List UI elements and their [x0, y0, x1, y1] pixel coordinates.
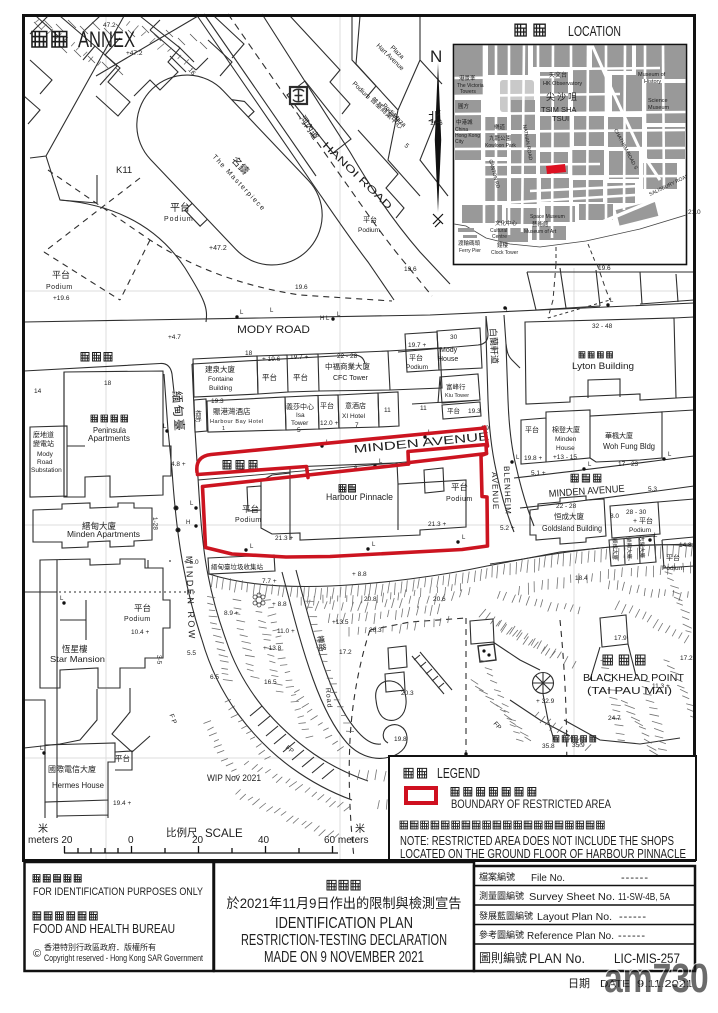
- svg-text:------: ------: [621, 872, 649, 884]
- svg-text:於2021年11月9日作出的限制與檢測宣告: 於2021年11月9日作出的限制與檢測宣告: [227, 895, 462, 911]
- svg-text:1-28: 1-28: [151, 517, 158, 531]
- svg-text:NOTE: RESTRICTED AREA DOES NOT: NOTE: RESTRICTED AREA DOES NOT INCLUDE T…: [400, 834, 674, 848]
- svg-text:19.7 +: 19.7 +: [290, 354, 308, 361]
- svg-text:0: 0: [128, 835, 134, 846]
- svg-text:24.7: 24.7: [608, 715, 621, 722]
- svg-text:參考圖編號: 參考圖編號: [479, 929, 524, 940]
- svg-text:10.4 +: 10.4 +: [131, 629, 149, 636]
- svg-text:H: H: [186, 520, 190, 526]
- svg-text:+ 8.8: + 8.8: [352, 571, 367, 578]
- svg-text:Podium: Podium: [235, 517, 262, 524]
- svg-text:FOOD AND HEALTH BUREAU: FOOD AND HEALTH BUREAU: [33, 922, 175, 936]
- svg-text:港景峯: 港景峯: [459, 74, 476, 82]
- svg-text:鐘樓: 鐘樓: [497, 241, 509, 249]
- svg-text:19.6: 19.6: [295, 284, 308, 291]
- svg-text:平台: 平台: [293, 372, 308, 382]
- svg-text:棉登大廈: 棉登大廈: [552, 425, 580, 434]
- svg-text:相助: 相助: [194, 410, 202, 422]
- svg-text:圓方: 圓方: [458, 102, 470, 110]
- svg-text:TSIM SHA: TSIM SHA: [541, 105, 576, 114]
- svg-text:恆星樓: 恆星樓: [62, 644, 88, 654]
- svg-text:19.6: 19.6: [598, 265, 611, 272]
- svg-text:圖則編號: 圖則編號: [479, 950, 527, 965]
- svg-text:賑港灣酒店: 賑港灣酒店: [213, 406, 251, 416]
- svg-text:測量圖編號: 測量圖編號: [479, 890, 524, 901]
- svg-text:華楓大廈: 華楓大廈: [605, 431, 633, 440]
- svg-text:19.7 +: 19.7 +: [408, 342, 426, 349]
- svg-text:義莎中心: 義莎中心: [286, 402, 314, 411]
- svg-text:比例尺: 比例尺: [166, 826, 198, 839]
- svg-text:麼地道: 麼地道: [33, 430, 54, 439]
- svg-text:平台: 平台: [666, 553, 680, 562]
- svg-text:17 - 23: 17 - 23: [618, 461, 639, 468]
- svg-text:8.0: 8.0: [610, 513, 619, 520]
- svg-text:16.5: 16.5: [264, 679, 277, 686]
- svg-text:平台: 平台: [52, 269, 70, 280]
- svg-text:5.2 +: 5.2 +: [500, 525, 515, 532]
- svg-text:14: 14: [34, 388, 42, 395]
- svg-text:11: 11: [420, 405, 427, 412]
- svg-text:米: 米: [355, 822, 365, 835]
- svg-text:Apartments: Apartments: [88, 433, 130, 443]
- svg-text:意酒店: 意酒店: [345, 401, 366, 410]
- svg-text:4.8 +: 4.8 +: [171, 461, 186, 468]
- svg-text:Survey Sheet No.: Survey Sheet No.: [529, 891, 615, 903]
- svg-text:平台: 平台: [170, 201, 190, 214]
- svg-text:Kowloon Park: Kowloon Park: [485, 143, 516, 149]
- svg-text:Science: Science: [648, 98, 668, 104]
- svg-text:Centre: Centre: [492, 234, 507, 240]
- svg-text:平台: 平台: [409, 353, 423, 362]
- svg-text:Layout Plan No.: Layout Plan No.: [537, 911, 612, 923]
- svg-text:中港城: 中港城: [456, 118, 473, 126]
- svg-text:建泉大廈: 建泉大廈: [205, 364, 235, 374]
- svg-text:©: ©: [33, 948, 41, 960]
- svg-text:XI Hotel: XI Hotel: [342, 413, 366, 420]
- svg-text:Museum of: Museum of: [638, 72, 666, 78]
- svg-text:日期: 日期: [568, 977, 590, 990]
- svg-text:ANNEX: ANNEX: [78, 27, 135, 52]
- svg-text:H L: H L: [320, 316, 330, 322]
- svg-text:BLENHEIM: BLENHEIM: [502, 466, 513, 515]
- svg-text:3-5: 3-5: [155, 655, 162, 665]
- svg-text:富峰行: 富峰行: [446, 382, 466, 391]
- svg-text:Ferry Pier: Ferry Pier: [459, 248, 481, 254]
- svg-text:平台: 平台: [451, 482, 468, 492]
- svg-text:14.8: 14.8: [679, 542, 692, 549]
- svg-text:City: City: [455, 139, 464, 145]
- svg-text:5: 5: [297, 427, 301, 434]
- svg-text:File No.: File No.: [531, 872, 565, 884]
- svg-text:米: 米: [38, 822, 48, 835]
- svg-text:------: ------: [619, 911, 647, 923]
- svg-text:中福商業大廈: 中福商業大廈: [325, 361, 370, 371]
- svg-text:35.9: 35.9: [572, 742, 585, 749]
- svg-text:60 meters: 60 meters: [324, 835, 368, 846]
- svg-text:MODY ROAD: MODY ROAD: [237, 324, 310, 336]
- svg-text:白蘭軒道: 白蘭軒道: [488, 328, 501, 365]
- svg-text:Building: Building: [209, 385, 233, 392]
- svg-text:40: 40: [258, 835, 270, 846]
- svg-text:SCALE: SCALE: [205, 828, 243, 840]
- svg-text:20.3: 20.3: [369, 627, 382, 634]
- svg-text:Goldsland Building: Goldsland Building: [542, 523, 602, 533]
- svg-text:11: 11: [384, 407, 391, 414]
- svg-text:K11: K11: [116, 165, 132, 176]
- svg-text:平台: 平台: [242, 504, 259, 514]
- svg-text:平台: 平台: [134, 603, 151, 613]
- svg-text:21.3 +: 21.3 +: [275, 535, 293, 542]
- svg-text:18.4: 18.4: [575, 575, 588, 582]
- svg-text:平台: 平台: [525, 425, 539, 434]
- svg-text:22 - 28: 22 - 28: [556, 503, 577, 510]
- svg-text:+ 19.6: + 19.6: [262, 356, 281, 363]
- svg-text:19.6: 19.6: [404, 266, 417, 273]
- svg-text:FOR IDENTIFICATION PURPOSES ON: FOR IDENTIFICATION PURPOSES ONLY: [33, 886, 204, 898]
- svg-text:+ 32.9: + 32.9: [536, 698, 555, 705]
- svg-text:九龍公園: 九龍公園: [489, 134, 512, 142]
- svg-text:32 - 48: 32 - 48: [592, 323, 613, 330]
- svg-text:N: N: [430, 47, 442, 66]
- svg-text:20.3: 20.3: [401, 690, 414, 697]
- svg-text:19.8: 19.8: [394, 736, 407, 743]
- svg-text:House: House: [556, 445, 575, 452]
- svg-text:Podium: Podium: [446, 496, 473, 503]
- svg-text:5.5: 5.5: [187, 650, 196, 657]
- svg-text:RESTRICTION-TESTING DECLARATIO: RESTRICTION-TESTING DECLARATION: [241, 932, 447, 949]
- svg-text:WIP Nov 2021: WIP Nov 2021: [207, 773, 261, 783]
- svg-text:17.2: 17.2: [680, 655, 693, 662]
- svg-text:天文台: 天文台: [549, 71, 567, 79]
- svg-text:平台: 平台: [447, 406, 460, 415]
- svg-text:1: 1: [222, 426, 225, 432]
- svg-text:Harbour Bay Hotel: Harbour Bay Hotel: [210, 419, 264, 425]
- svg-text:變電站: 變電站: [33, 439, 54, 448]
- svg-text:北: 北: [428, 110, 441, 125]
- svg-text:------: ------: [618, 930, 646, 942]
- svg-text:+ 13.8: + 13.8: [263, 645, 282, 652]
- svg-text:30: 30: [450, 334, 458, 341]
- svg-text:縉甸臺垃圾收集站: 縉甸臺垃圾收集站: [211, 562, 264, 571]
- svg-text:Copyright reserved - Hong Kong: Copyright reserved - Hong Kong SAR Gover…: [44, 953, 203, 964]
- svg-text:20.8: 20.8: [364, 596, 377, 603]
- svg-text:IDENTIFICATION PLAN: IDENTIFICATION PLAN: [275, 915, 413, 932]
- svg-text:21.3 +: 21.3 +: [428, 521, 446, 528]
- svg-text:TSUI: TSUI: [552, 114, 569, 123]
- svg-text:Clock Tower: Clock Tower: [491, 250, 518, 256]
- svg-text:5.1 +: 5.1 +: [531, 470, 546, 477]
- svg-text:尖沙咀: 尖沙咀: [546, 91, 579, 102]
- svg-text:MADE ON 9 NOVEMBER 2021: MADE ON 9 NOVEMBER 2021: [264, 949, 424, 966]
- svg-text:LEGEND: LEGEND: [437, 766, 480, 782]
- svg-text:國際電信大廈: 國際電信大廈: [48, 764, 96, 774]
- svg-text:緬甸臺: 緬甸臺: [170, 390, 188, 433]
- svg-text:Kiu Tower: Kiu Tower: [445, 393, 469, 399]
- svg-text:17.9: 17.9: [614, 635, 627, 642]
- svg-text:平台: 平台: [363, 215, 377, 224]
- svg-text:Lyton Building: Lyton Building: [572, 361, 634, 371]
- svg-text:18: 18: [245, 350, 253, 357]
- svg-text:Fontaine: Fontaine: [208, 376, 234, 383]
- svg-text:+13 - 15: +13 - 15: [553, 454, 577, 461]
- svg-text:HK Observatory: HK Observatory: [543, 81, 582, 87]
- svg-text:7: 7: [355, 422, 359, 429]
- svg-text:+19.6: +19.6: [53, 295, 70, 302]
- svg-text:Road: Road: [37, 459, 53, 466]
- svg-text:Minden Apartments: Minden Apartments: [67, 529, 140, 539]
- svg-text:Star Mansion: Star Mansion: [50, 654, 105, 664]
- svg-text:8.9 +: 8.9 +: [224, 610, 239, 617]
- svg-text:恒成大廈: 恒成大廈: [554, 511, 584, 521]
- svg-text:香港特別行政區政府．版權所有: 香港特別行政區政府．版權所有: [44, 942, 156, 952]
- svg-text:Mody: Mody: [37, 451, 54, 458]
- svg-text:11-SW-4B, 5A: 11-SW-4B, 5A: [618, 891, 670, 903]
- svg-text:Podium: Podium: [358, 227, 380, 234]
- svg-text:35.8: 35.8: [542, 743, 555, 750]
- svg-text:平台: 平台: [320, 401, 334, 410]
- svg-text:Podium: Podium: [124, 616, 151, 623]
- svg-text:(TAI PAU MAI): (TAI PAU MAI): [587, 685, 672, 697]
- svg-text:19.3: 19.3: [211, 398, 224, 405]
- svg-text:Substation: Substation: [31, 467, 62, 474]
- svg-text:檔案編號: 檔案編號: [479, 871, 515, 882]
- svg-text:Podium: Podium: [662, 565, 684, 572]
- svg-text:18: 18: [104, 380, 112, 387]
- svg-text:Woh Fung Bldg: Woh Fung Bldg: [603, 441, 655, 451]
- svg-text:平台: 平台: [262, 372, 277, 382]
- svg-text:5.3: 5.3: [648, 486, 657, 493]
- svg-text:藝術館: 藝術館: [532, 220, 549, 228]
- svg-text:Mody: Mody: [440, 347, 458, 354]
- svg-text:Harbour Pinnacle: Harbour Pinnacle: [326, 492, 393, 502]
- svg-text:12.0 +: 12.0 +: [320, 420, 338, 427]
- svg-text:Space Museum: Space Museum: [530, 214, 565, 220]
- svg-text:Reference Plan No.: Reference Plan No.: [527, 930, 614, 942]
- svg-text:平台: 平台: [115, 753, 130, 763]
- svg-text:Isa: Isa: [296, 412, 305, 419]
- svg-text:28 - 30: 28 - 30: [626, 509, 647, 516]
- svg-text:CFC Tower: CFC Tower: [333, 375, 369, 382]
- svg-text:+13.5: +13.5: [332, 619, 349, 626]
- svg-text:Towers: Towers: [460, 89, 476, 95]
- svg-text:19.4 +: 19.4 +: [113, 800, 131, 807]
- svg-text:+47.2: +47.2: [209, 245, 227, 252]
- svg-text:LOCATION: LOCATION: [568, 23, 621, 40]
- svg-text:6.5: 6.5: [210, 674, 219, 681]
- svg-text:+ 平台: + 平台: [633, 516, 653, 525]
- svg-text:am730: am730: [604, 955, 709, 1001]
- svg-text:19.8 +: 19.8 +: [524, 455, 542, 462]
- svg-text:Podium: Podium: [164, 216, 194, 223]
- svg-text:+ 8.8: + 8.8: [272, 601, 287, 608]
- svg-text:20.6: 20.6: [433, 596, 446, 603]
- svg-text:Podium: Podium: [406, 364, 428, 371]
- svg-text:Hermes House: Hermes House: [52, 780, 104, 790]
- svg-text:+ 5.0: + 5.0: [184, 559, 199, 566]
- svg-text:BLACKHEAD POINT: BLACKHEAD POINT: [583, 672, 685, 684]
- svg-text:History: History: [644, 79, 661, 85]
- svg-text:Minden: Minden: [555, 436, 577, 443]
- svg-text:+4.7: +4.7: [168, 334, 181, 341]
- svg-text:22 - 28: 22 - 28: [337, 353, 358, 360]
- svg-text:發展藍圖編號: 發展藍圖編號: [479, 910, 533, 921]
- svg-text:AVENUE: AVENUE: [490, 472, 500, 511]
- svg-text:樂道: 樂道: [494, 123, 506, 131]
- svg-text:Podium: Podium: [629, 527, 651, 534]
- svg-text:渡輪碼頭: 渡輪碼頭: [458, 239, 481, 247]
- svg-text:PLAN No.: PLAN No.: [529, 951, 585, 966]
- svg-text:BOUNDARY OF RESTRICTED AREA: BOUNDARY OF RESTRICTED AREA: [451, 797, 611, 811]
- svg-text:19.3: 19.3: [468, 408, 481, 415]
- svg-text:文化中心: 文化中心: [495, 219, 518, 227]
- svg-text:Podium: Podium: [46, 284, 73, 291]
- svg-text:Museum of Art: Museum of Art: [524, 229, 557, 235]
- svg-text:7.7 +: 7.7 +: [262, 578, 277, 585]
- svg-text:Tower: Tower: [291, 420, 309, 427]
- svg-text:11.0 +: 11.0 +: [277, 628, 295, 635]
- svg-text:17.2: 17.2: [339, 649, 352, 656]
- svg-text:meters 20: meters 20: [28, 835, 73, 846]
- svg-text:Museum: Museum: [648, 105, 670, 111]
- svg-text:House: House: [438, 356, 458, 363]
- svg-text:LOCATED ON THE GROUND FLOOR OF: LOCATED ON THE GROUND FLOOR OF HARBOUR P…: [400, 847, 686, 861]
